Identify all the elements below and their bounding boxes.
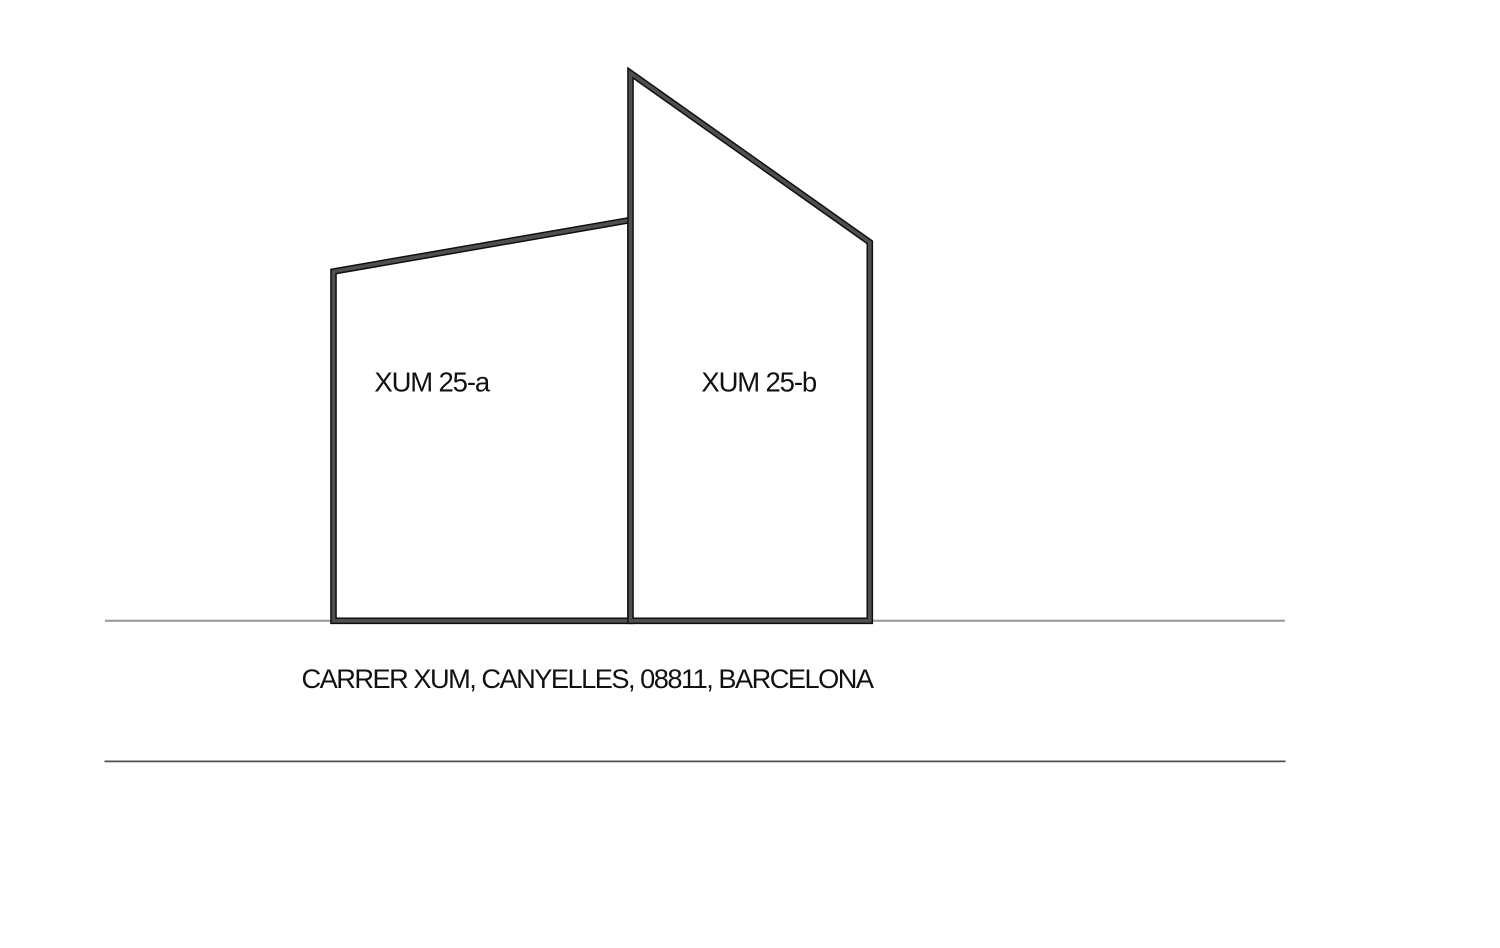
svg-text:XUM 25-b: XUM 25-b [701, 367, 816, 398]
svg-text:CARRER XUM, CANYELLES, 08811,: CARRER XUM, CANYELLES, 08811, BARCELONA [302, 663, 875, 694]
svg-text:XUM 25-a: XUM 25-a [374, 367, 490, 398]
